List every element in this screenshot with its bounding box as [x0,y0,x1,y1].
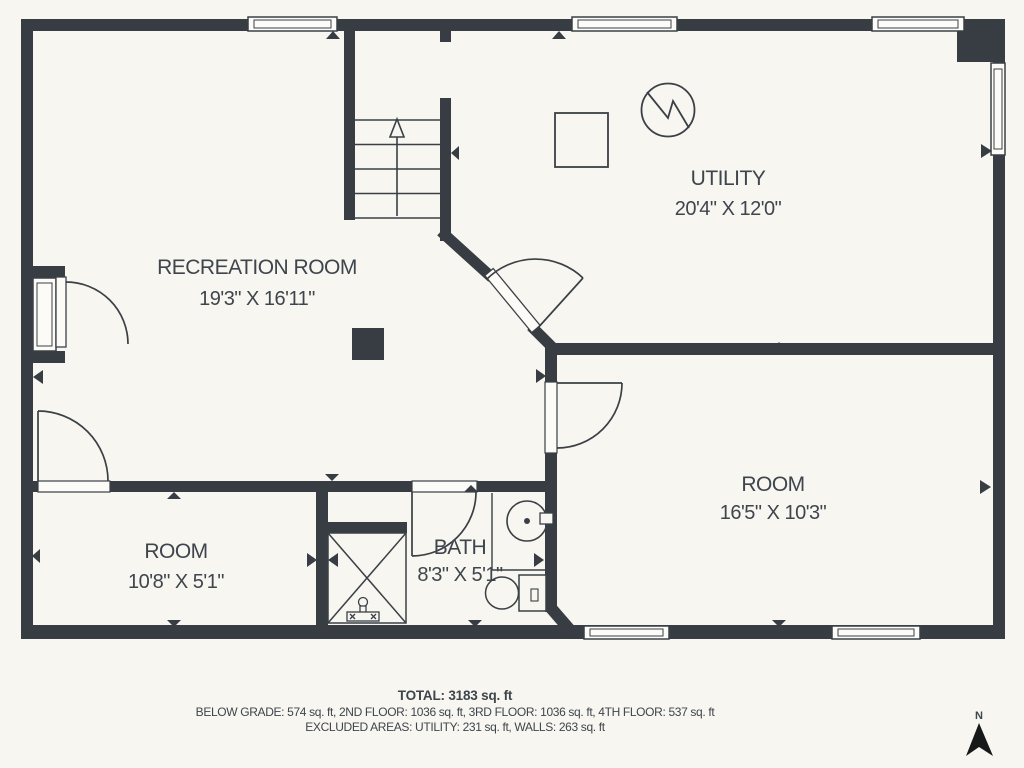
pilaster-bottom [33,351,65,363]
room-label-room-left: ROOM [144,540,207,563]
wall-lower-divider-a [21,481,38,492]
room-label-recreation: RECREATION ROOM [157,256,357,279]
wall-marker [980,480,991,494]
wall-marker [552,31,566,39]
wall-marker [451,146,459,160]
wall-center-upper [545,343,557,382]
window-right [991,63,1005,155]
stair-wall-left [344,19,355,220]
wall-bath-left [316,492,328,627]
wall-marker [33,370,43,384]
window-top-3 [872,17,964,31]
wall-marker [536,369,546,383]
wall-marker [167,492,181,499]
door-west [56,277,128,347]
wall-markers [32,31,992,627]
wall-lower-divider-c [477,481,557,492]
compass: N [966,710,993,756]
wall-top [21,19,1005,31]
door-utility [485,259,583,332]
support-post [352,328,384,360]
area-summary: TOTAL: 3183 sq. ft BELOW GRADE: 574 sq. … [196,688,716,734]
compass-label: N [975,710,983,722]
window-bottom-2 [832,626,920,639]
wall-bath-right [545,492,557,612]
wall-marker [325,474,339,481]
north-arrow-icon [966,723,993,756]
room-dims-utility: 20'4" X 12'0" [675,198,782,220]
furnace-outline [555,113,608,167]
stairs [355,119,440,218]
wall-utility-divider [549,343,993,355]
room-dims-room-left: 10'8" X 5'1" [128,571,224,593]
wall-marker [328,553,338,567]
wall-marker [32,549,40,563]
room-dims-recreation: 19'3" X 16'11" [199,288,315,310]
stair-wall-right [440,98,451,241]
wall-left [21,19,33,639]
room-label-room-right: ROOM [741,473,804,496]
summary-excluded: EXCLUDED AREAS: UTILITY: 231 sq. ft, WAL… [305,720,605,734]
wall-marker [326,31,340,39]
doors [38,259,622,556]
summary-total: TOTAL: 3183 sq. ft [398,688,513,703]
door-room-left [38,411,110,492]
stair-up-arrow-icon [390,119,404,137]
utility-fixtures [555,84,695,168]
wall-lower-divider-b [110,481,412,492]
wall-marker [307,553,317,567]
summary-floors: BELOW GRADE: 574 sq. ft, 2ND FLOOR: 1036… [196,705,716,719]
door-room-right [545,382,622,453]
pilaster-top [33,266,65,278]
shower-fixture-icon [347,598,379,622]
floor-plan-page: RECREATION ROOM 19'3" X 16'11" UTILITY 2… [0,0,1024,768]
window-left-sidelite [33,278,56,351]
floor-plan: RECREATION ROOM 19'3" X 16'11" UTILITY 2… [0,0,1024,768]
wall-diagonal-upper [445,235,488,274]
shower-stall [328,533,406,623]
window-top-2 [572,17,677,31]
wall-shower-top [316,522,407,533]
room-dims-room-right: 16'5" X 10'3" [720,502,827,524]
room-labels: RECREATION ROOM 19'3" X 16'11" UTILITY 2… [128,167,827,593]
room-dims-bath: 8'3" X 5'1" [417,564,503,586]
water-heater-icon [642,84,695,137]
window-top-1 [248,17,337,31]
wall-marker [534,553,544,567]
window-bottom-1 [584,626,669,639]
stair-wall-right-stub [440,19,451,42]
room-label-utility: UTILITY [691,167,766,190]
room-label-bath: BATH [434,536,486,559]
